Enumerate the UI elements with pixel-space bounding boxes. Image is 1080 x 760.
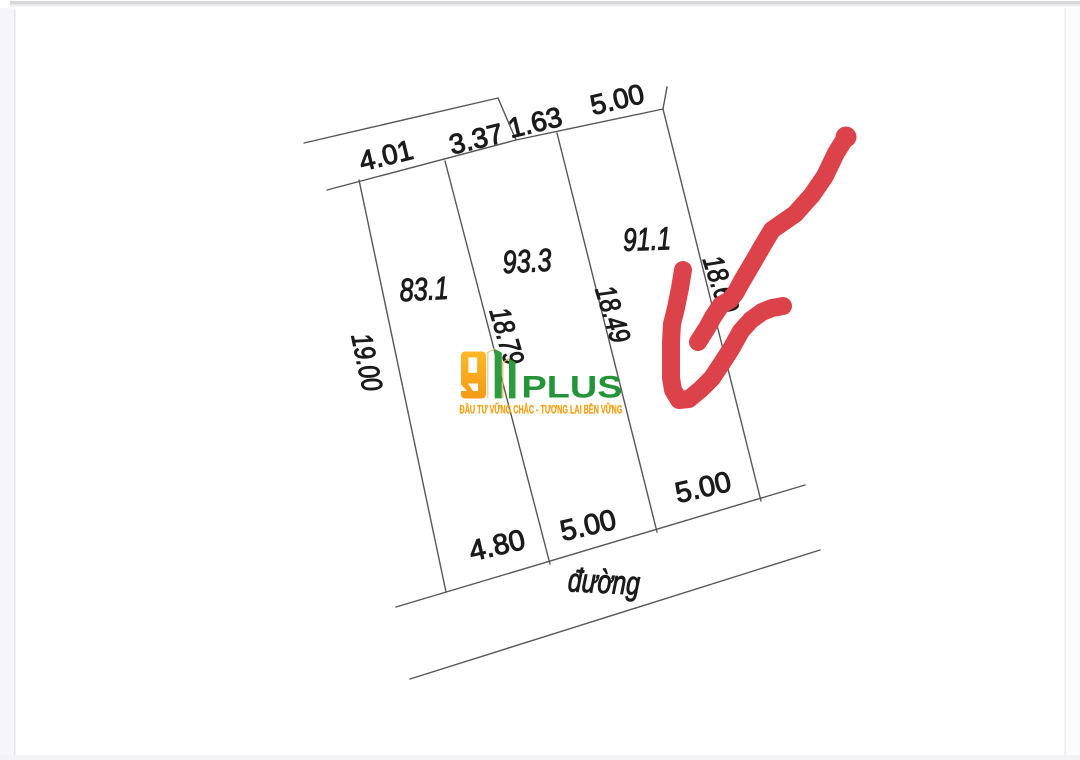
svg-text:ĐẦU TƯ VỮNG CHẮC - TƯƠNG LAI B: ĐẦU TƯ VỮNG CHẮC - TƯƠNG LAI BỀN VỮNG: [460, 403, 623, 417]
svg-text:PLUS: PLUS: [522, 369, 623, 405]
svg-text:đường: đường: [567, 561, 641, 602]
svg-text:83.1: 83.1: [399, 270, 450, 309]
svg-text:93.3: 93.3: [502, 242, 553, 281]
svg-text:91.1: 91.1: [622, 220, 671, 258]
